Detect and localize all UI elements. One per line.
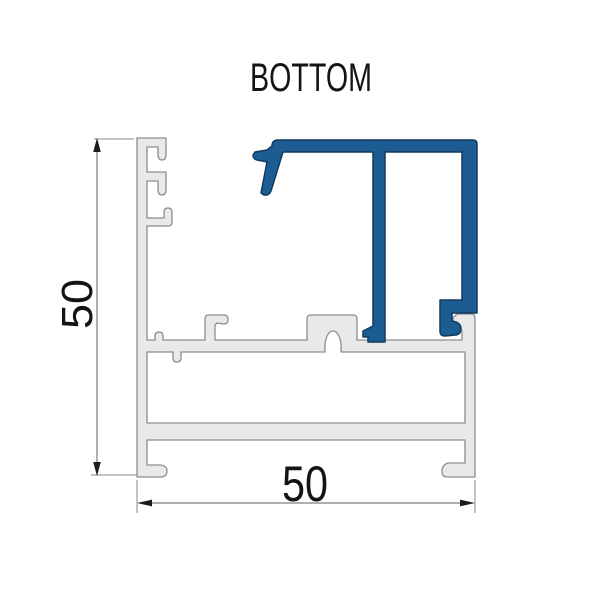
- height-dimension-label: 50: [53, 279, 102, 329]
- height-dimension: 50: [53, 138, 148, 476]
- dimension-arrow-down: [93, 462, 101, 476]
- frame-profile-shape: [137, 138, 475, 477]
- dimension-arrow-up: [93, 138, 101, 152]
- dimension-arrow-left: [137, 500, 152, 507]
- width-dimension-label: 50: [282, 456, 328, 512]
- view-title: BOTTOM: [250, 56, 372, 100]
- technical-drawing-canvas: 50 50 BOTTOM: [0, 0, 600, 600]
- insert-profile-shape: [253, 140, 477, 342]
- profile-cross-section-drawing: 50 50 BOTTOM: [0, 0, 600, 600]
- dimension-arrow-right: [460, 500, 475, 507]
- width-dimension: 50: [137, 456, 475, 513]
